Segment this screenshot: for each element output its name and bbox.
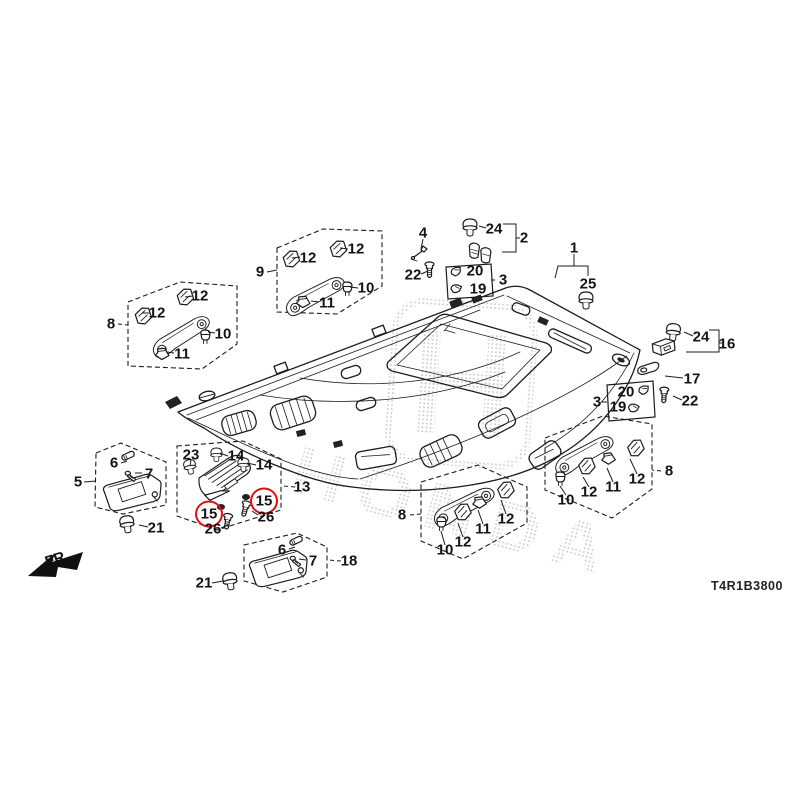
- clip-24-drawing: [463, 219, 477, 236]
- sun-visor-drawing: [248, 549, 309, 588]
- clip-25-drawing: [579, 292, 593, 309]
- part-4-drawing: [411, 246, 427, 261]
- edge-tab: [372, 325, 386, 337]
- clip-12-drawing: [626, 438, 646, 458]
- clip-21-drawing: [119, 515, 135, 534]
- parts-diagram-canvas: HONDA: [0, 0, 800, 800]
- holder-2-drawing: [467, 242, 491, 263]
- diagram-line-art: HONDA: [0, 0, 800, 800]
- clip-11-drawing: [601, 452, 615, 465]
- rear-garnish-strip: [547, 328, 593, 355]
- edge-tab: [274, 362, 288, 374]
- clip-14-drawing: [211, 448, 222, 462]
- screw-26-drawing: [239, 500, 252, 517]
- clip-12-drawing: [282, 249, 301, 268]
- pin-6-drawing: [289, 536, 303, 546]
- grommet-10-drawing: [556, 472, 565, 486]
- panel-clip-mark: [471, 294, 482, 303]
- front-rib-patch: [220, 409, 258, 438]
- pin-6-drawing: [121, 451, 135, 461]
- hook-20-drawing: [450, 266, 462, 276]
- grommet-10-drawing: [343, 282, 352, 296]
- front-rib-patch: [268, 394, 318, 432]
- hook-19-drawing: [450, 284, 461, 294]
- clip-dot: [242, 494, 250, 500]
- clip-23-drawing: [183, 459, 197, 475]
- hook-17-drawing: [637, 362, 660, 375]
- clip-21-drawing: [222, 572, 238, 591]
- hook-19-drawing: [628, 403, 640, 413]
- bracket-16-drawing: [652, 338, 675, 356]
- clip-24-drawing: [666, 323, 681, 341]
- hook-20-drawing: [638, 385, 649, 395]
- screw-22-drawing: [425, 262, 434, 278]
- clip-dot: [217, 504, 225, 510]
- diagram-code: T4R1B3800: [711, 579, 783, 593]
- corner-bracket-mark: [165, 396, 182, 409]
- clip-12-drawing: [134, 306, 153, 325]
- panel-hole: [340, 364, 362, 380]
- panel-hole: [355, 396, 377, 412]
- front-oval-boss: [198, 390, 216, 403]
- panel-clip-mark: [537, 316, 549, 326]
- screw-22-drawing: [659, 387, 669, 403]
- grab-handle-drawing: [282, 275, 349, 317]
